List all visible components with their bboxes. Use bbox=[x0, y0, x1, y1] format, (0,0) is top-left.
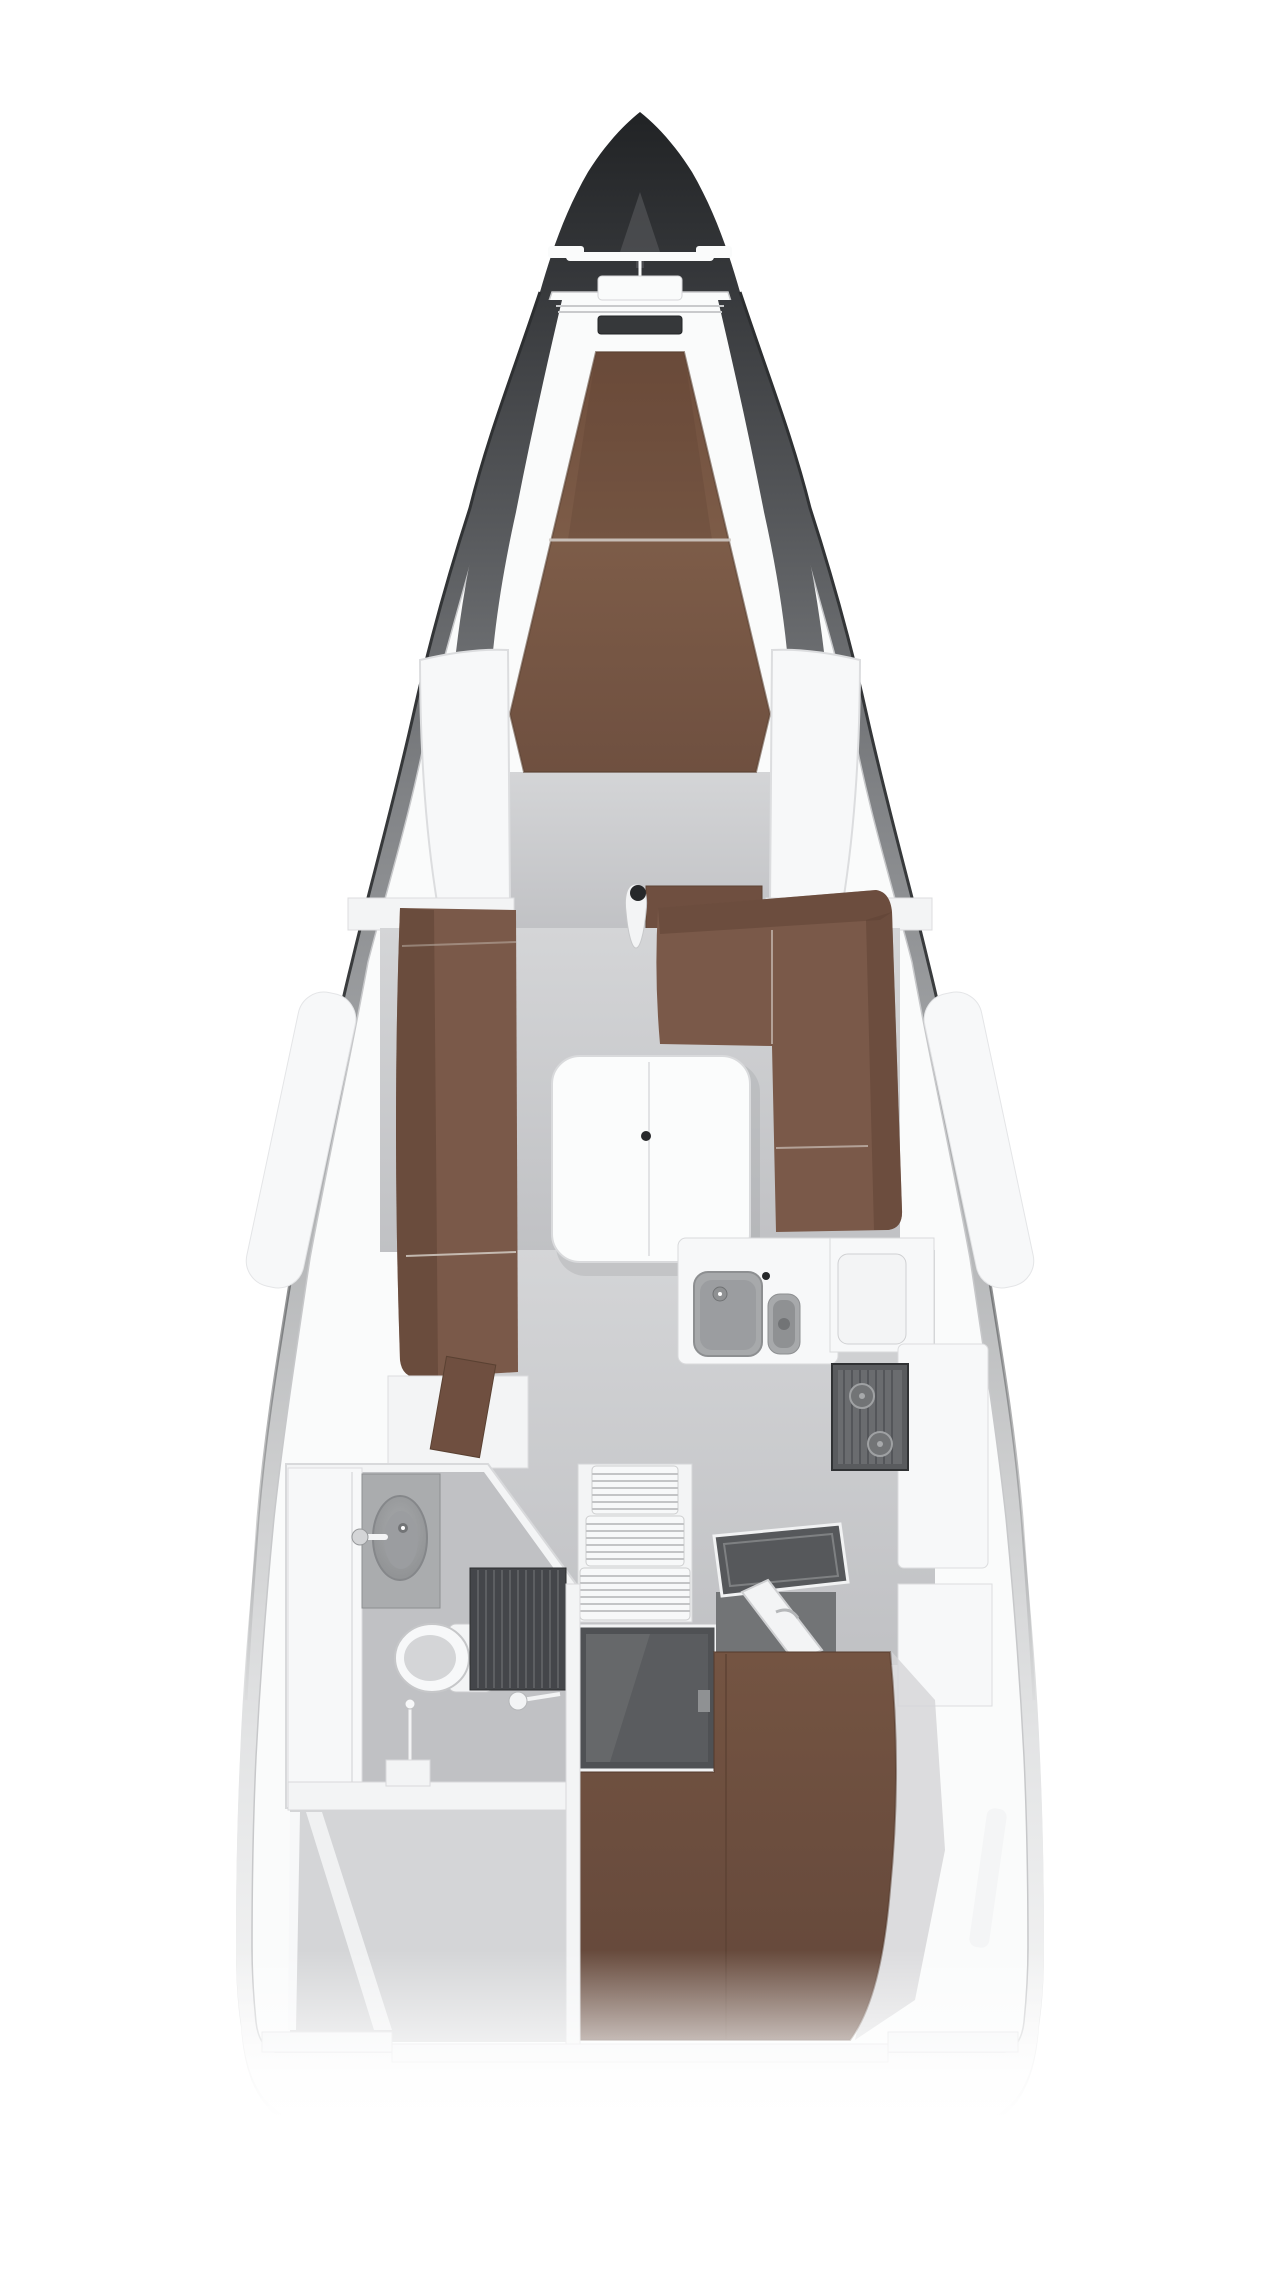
faucet-knob bbox=[352, 1529, 368, 1545]
shower-mixer-knob bbox=[509, 1692, 527, 1710]
stern-fade-overlay bbox=[0, 1950, 1280, 2276]
head-aft-wall-notch bbox=[386, 1760, 430, 1786]
shower-rail-knob bbox=[405, 1699, 415, 1709]
toilet-seat bbox=[404, 1635, 456, 1681]
mast-post bbox=[630, 885, 646, 901]
stove-burner-fore-cap bbox=[859, 1393, 865, 1399]
starboard-locker bbox=[770, 650, 860, 910]
yacht-floorplan-svg bbox=[0, 0, 1280, 2276]
port-sofa-backrest bbox=[396, 908, 438, 1378]
yacht-floorplan-figure bbox=[0, 0, 1280, 2276]
engine-hatch bbox=[578, 1626, 716, 1770]
stove-burner-aft-cap bbox=[877, 1441, 883, 1447]
sink-large-bowl bbox=[700, 1280, 756, 1350]
bow-hatch bbox=[598, 316, 682, 334]
sink-faucet-dot bbox=[718, 1292, 722, 1296]
fridge-lid bbox=[838, 1254, 906, 1344]
basin-drain-dot bbox=[401, 1526, 405, 1530]
counter-knob bbox=[762, 1272, 770, 1280]
head-aft-wall bbox=[288, 1782, 576, 1810]
engine-hatch-latch bbox=[698, 1690, 710, 1712]
saloon-table bbox=[552, 1056, 750, 1262]
washbasin-unit bbox=[352, 1474, 440, 1608]
port-locker bbox=[420, 650, 510, 910]
sink-small-drain bbox=[778, 1318, 790, 1330]
table-pedestal-dot bbox=[641, 1131, 651, 1141]
galley-side-cabinet bbox=[898, 1344, 988, 1568]
anchor-windlass bbox=[598, 276, 682, 300]
stove bbox=[832, 1364, 908, 1470]
washbasin-bowl bbox=[384, 1511, 418, 1569]
anchor-roller-bar bbox=[566, 252, 714, 261]
wardrobe bbox=[288, 1468, 362, 1790]
